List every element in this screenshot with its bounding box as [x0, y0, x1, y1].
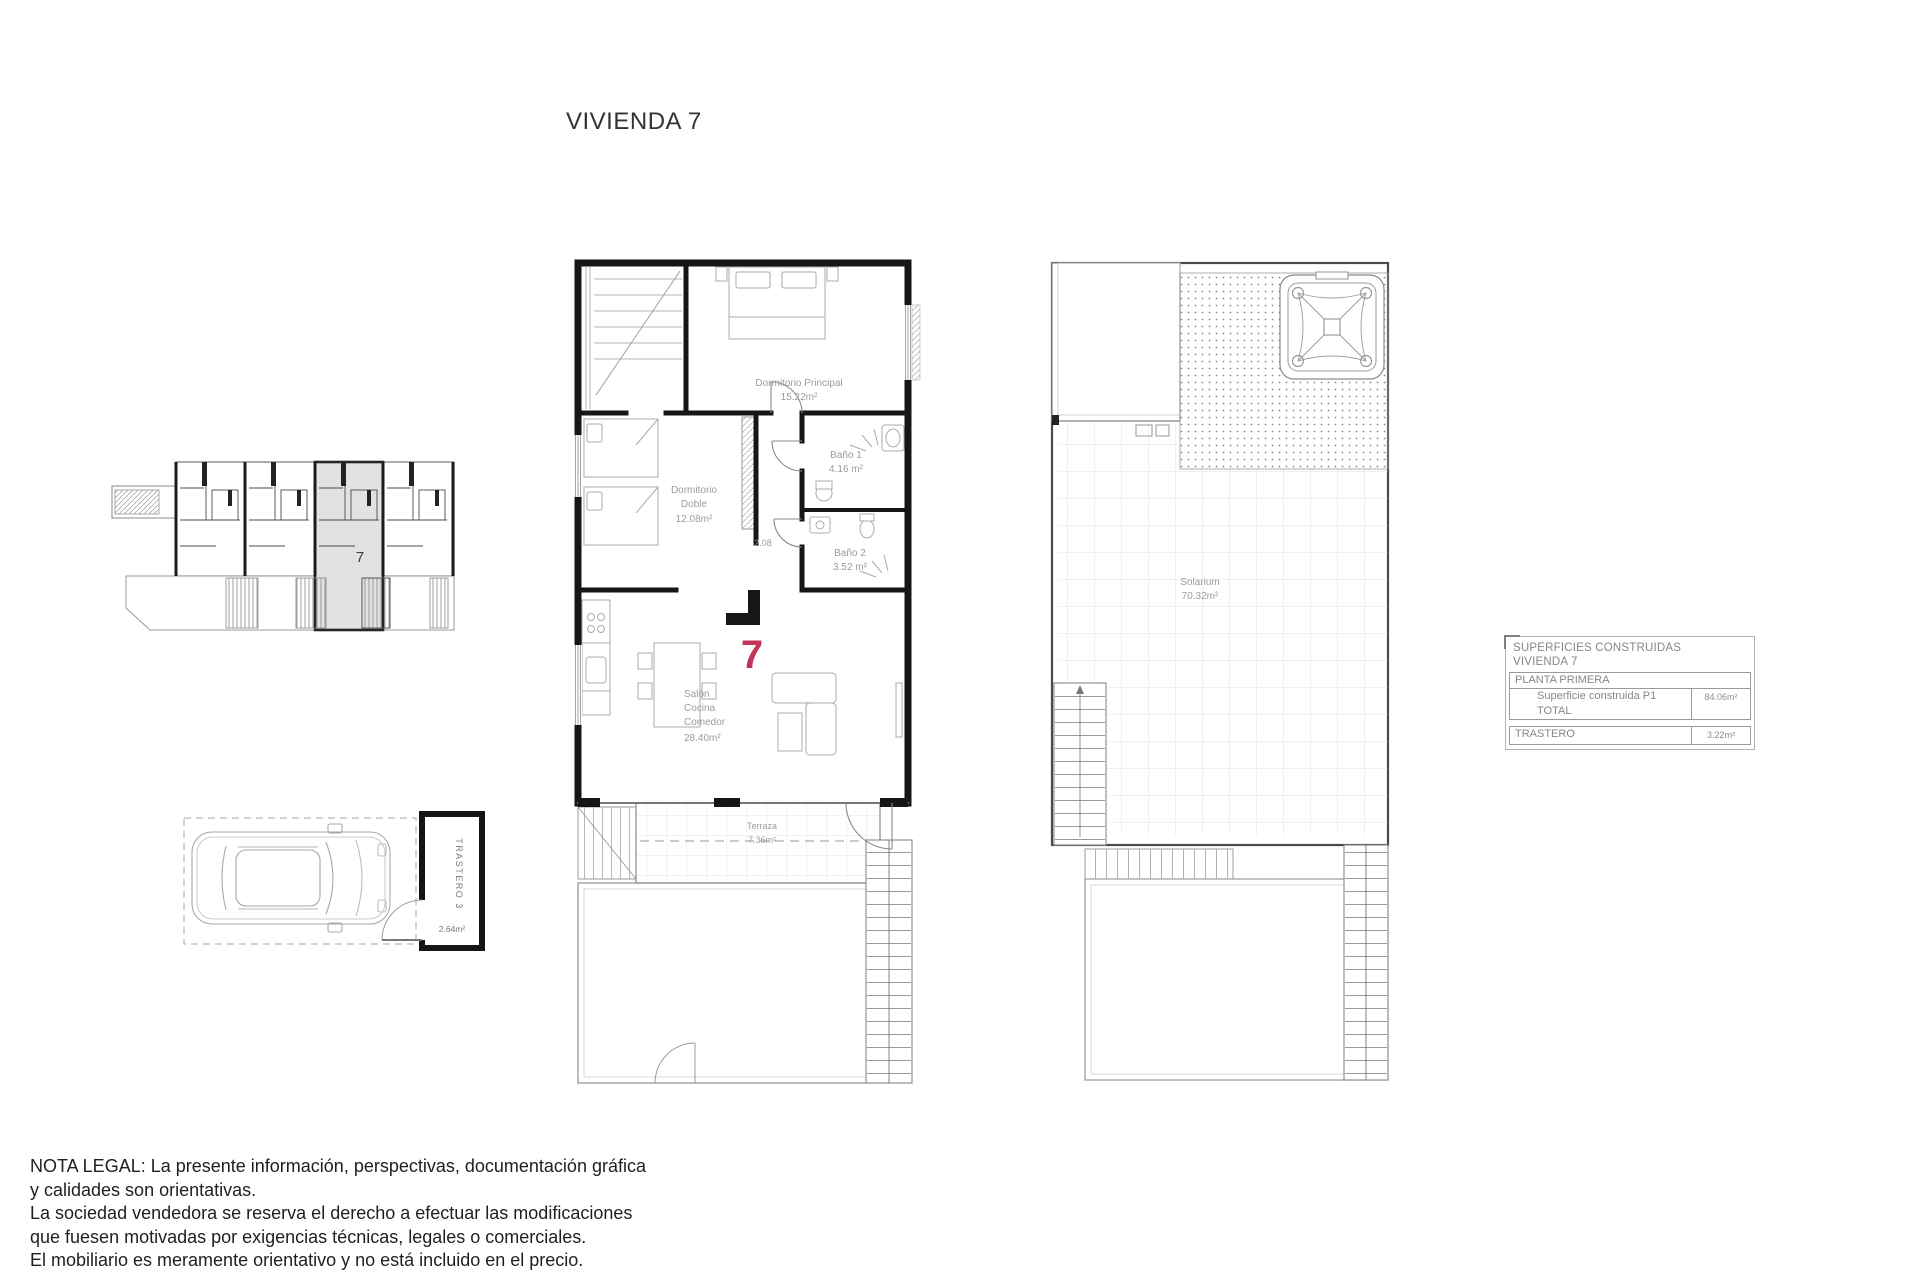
solarium-tiles: [1058, 469, 1388, 835]
unit-number-red: 7: [741, 633, 763, 677]
room-area-principal: 15.22m²: [781, 392, 818, 403]
room-label-doble: Dormitorio: [671, 485, 718, 496]
summary-header-line1: SUPERFICIES CONSTRUIDAS: [1513, 641, 1747, 655]
trastero-label: TRASTERO 3: [454, 838, 464, 910]
summary-row-trastero: TRASTERO 3.22m²: [1509, 726, 1751, 745]
solarium-stairs-icon: [1054, 683, 1106, 845]
room-area-doble: 12.08m²: [676, 514, 713, 525]
room-label-salon2: Cocina: [684, 703, 716, 714]
summary-row-value: 3.22m²: [1691, 727, 1750, 744]
room-label-salon3: Comedor: [684, 717, 726, 728]
room-label-doble2: Doble: [681, 499, 708, 510]
room-area-solarium: 70.32m²: [1182, 591, 1219, 602]
terraza-zone: [578, 803, 880, 883]
right-stairs-icon: [866, 840, 912, 1083]
coffee-table-icon: [778, 713, 802, 751]
solarium-plan: Solarium 70.32m²: [1040, 255, 1400, 1085]
solarium-tiles-left: [1058, 421, 1180, 469]
car-icon: [192, 824, 390, 932]
site-unit-number: 7: [356, 549, 364, 566]
summary-row-planta: PLANTA PRIMERA: [1509, 672, 1751, 689]
room-label-solarium: Solarium: [1180, 577, 1219, 588]
room-label-terraza: Terraza: [747, 821, 777, 831]
summary-row-label: Superficie construida P1 TOTAL: [1515, 689, 1691, 719]
trastero-area: 2.64m²: [439, 924, 466, 934]
room-label-bano2: Baño 2: [834, 548, 866, 559]
page-title: VIVIENDA 7: [566, 108, 702, 136]
legal-line: El mobiliario es meramente orientativo y…: [30, 1249, 646, 1273]
double-bed-icon: [716, 267, 838, 339]
room-area-bano1: 4.16 m²: [829, 464, 864, 475]
jacuzzi-icon: [1280, 272, 1384, 379]
main-floor-plan: Dormitorio Principal 15.22m² Baño 1 4.16…: [566, 255, 922, 1085]
legal-line: La sociedad vendedora se reserva el dere…: [30, 1202, 646, 1226]
room-area-bano2: 3.52 m²: [833, 562, 868, 573]
legal-line: NOTA LEGAL: La presente información, per…: [30, 1155, 646, 1179]
legal-line: y calidades son orientativas.: [30, 1179, 646, 1203]
summary-table: SUPERFICIES CONSTRUIDAS VIVIENDA 7 PLANT…: [1505, 636, 1755, 750]
legal-line: que fuesen motivadas por exigencias técn…: [30, 1226, 646, 1250]
room-area-terraza: 7.36m²: [748, 835, 776, 845]
trastero-room: TRASTERO 3 2.64m²: [382, 814, 482, 948]
legal-note: NOTA LEGAL: La presente información, per…: [30, 1155, 646, 1273]
lower-patio: [1085, 849, 1388, 1080]
parking-storage-plan: TRASTERO 3 2.64m²: [180, 806, 500, 958]
summary-row-label: TRASTERO: [1515, 727, 1575, 744]
solarium-right-stairs-icon: [1344, 845, 1388, 1080]
summary-table-header: SUPERFICIES CONSTRUIDAS VIVIENDA 7: [1509, 640, 1751, 672]
dimension-label: 2.08: [754, 538, 772, 548]
stairwell-void: [1052, 263, 1180, 436]
tv-icon: [896, 683, 902, 737]
shutter-icon: [912, 305, 920, 380]
patio-zone: [578, 883, 874, 1083]
room-label-bano1: Baño 1: [830, 450, 862, 461]
summary-section-label: PLANTA PRIMERA: [1515, 673, 1610, 688]
site-key-plan: 7: [108, 450, 512, 650]
summary-row-superficie: Superficie construida P1 TOTAL 84.06m²: [1509, 689, 1751, 720]
room-label-principal: Dormitorio Principal: [755, 378, 842, 389]
room-area-salon: 28.40m²: [684, 733, 721, 744]
summary-header-line2: VIVIENDA 7: [1513, 655, 1747, 669]
stair-band-icon: [1085, 849, 1233, 879]
room-label-salon: Salón: [684, 689, 710, 700]
summary-row-value: 84.06m²: [1691, 689, 1750, 719]
door-gap: [417, 900, 426, 940]
kitchen-icon: [582, 600, 610, 715]
